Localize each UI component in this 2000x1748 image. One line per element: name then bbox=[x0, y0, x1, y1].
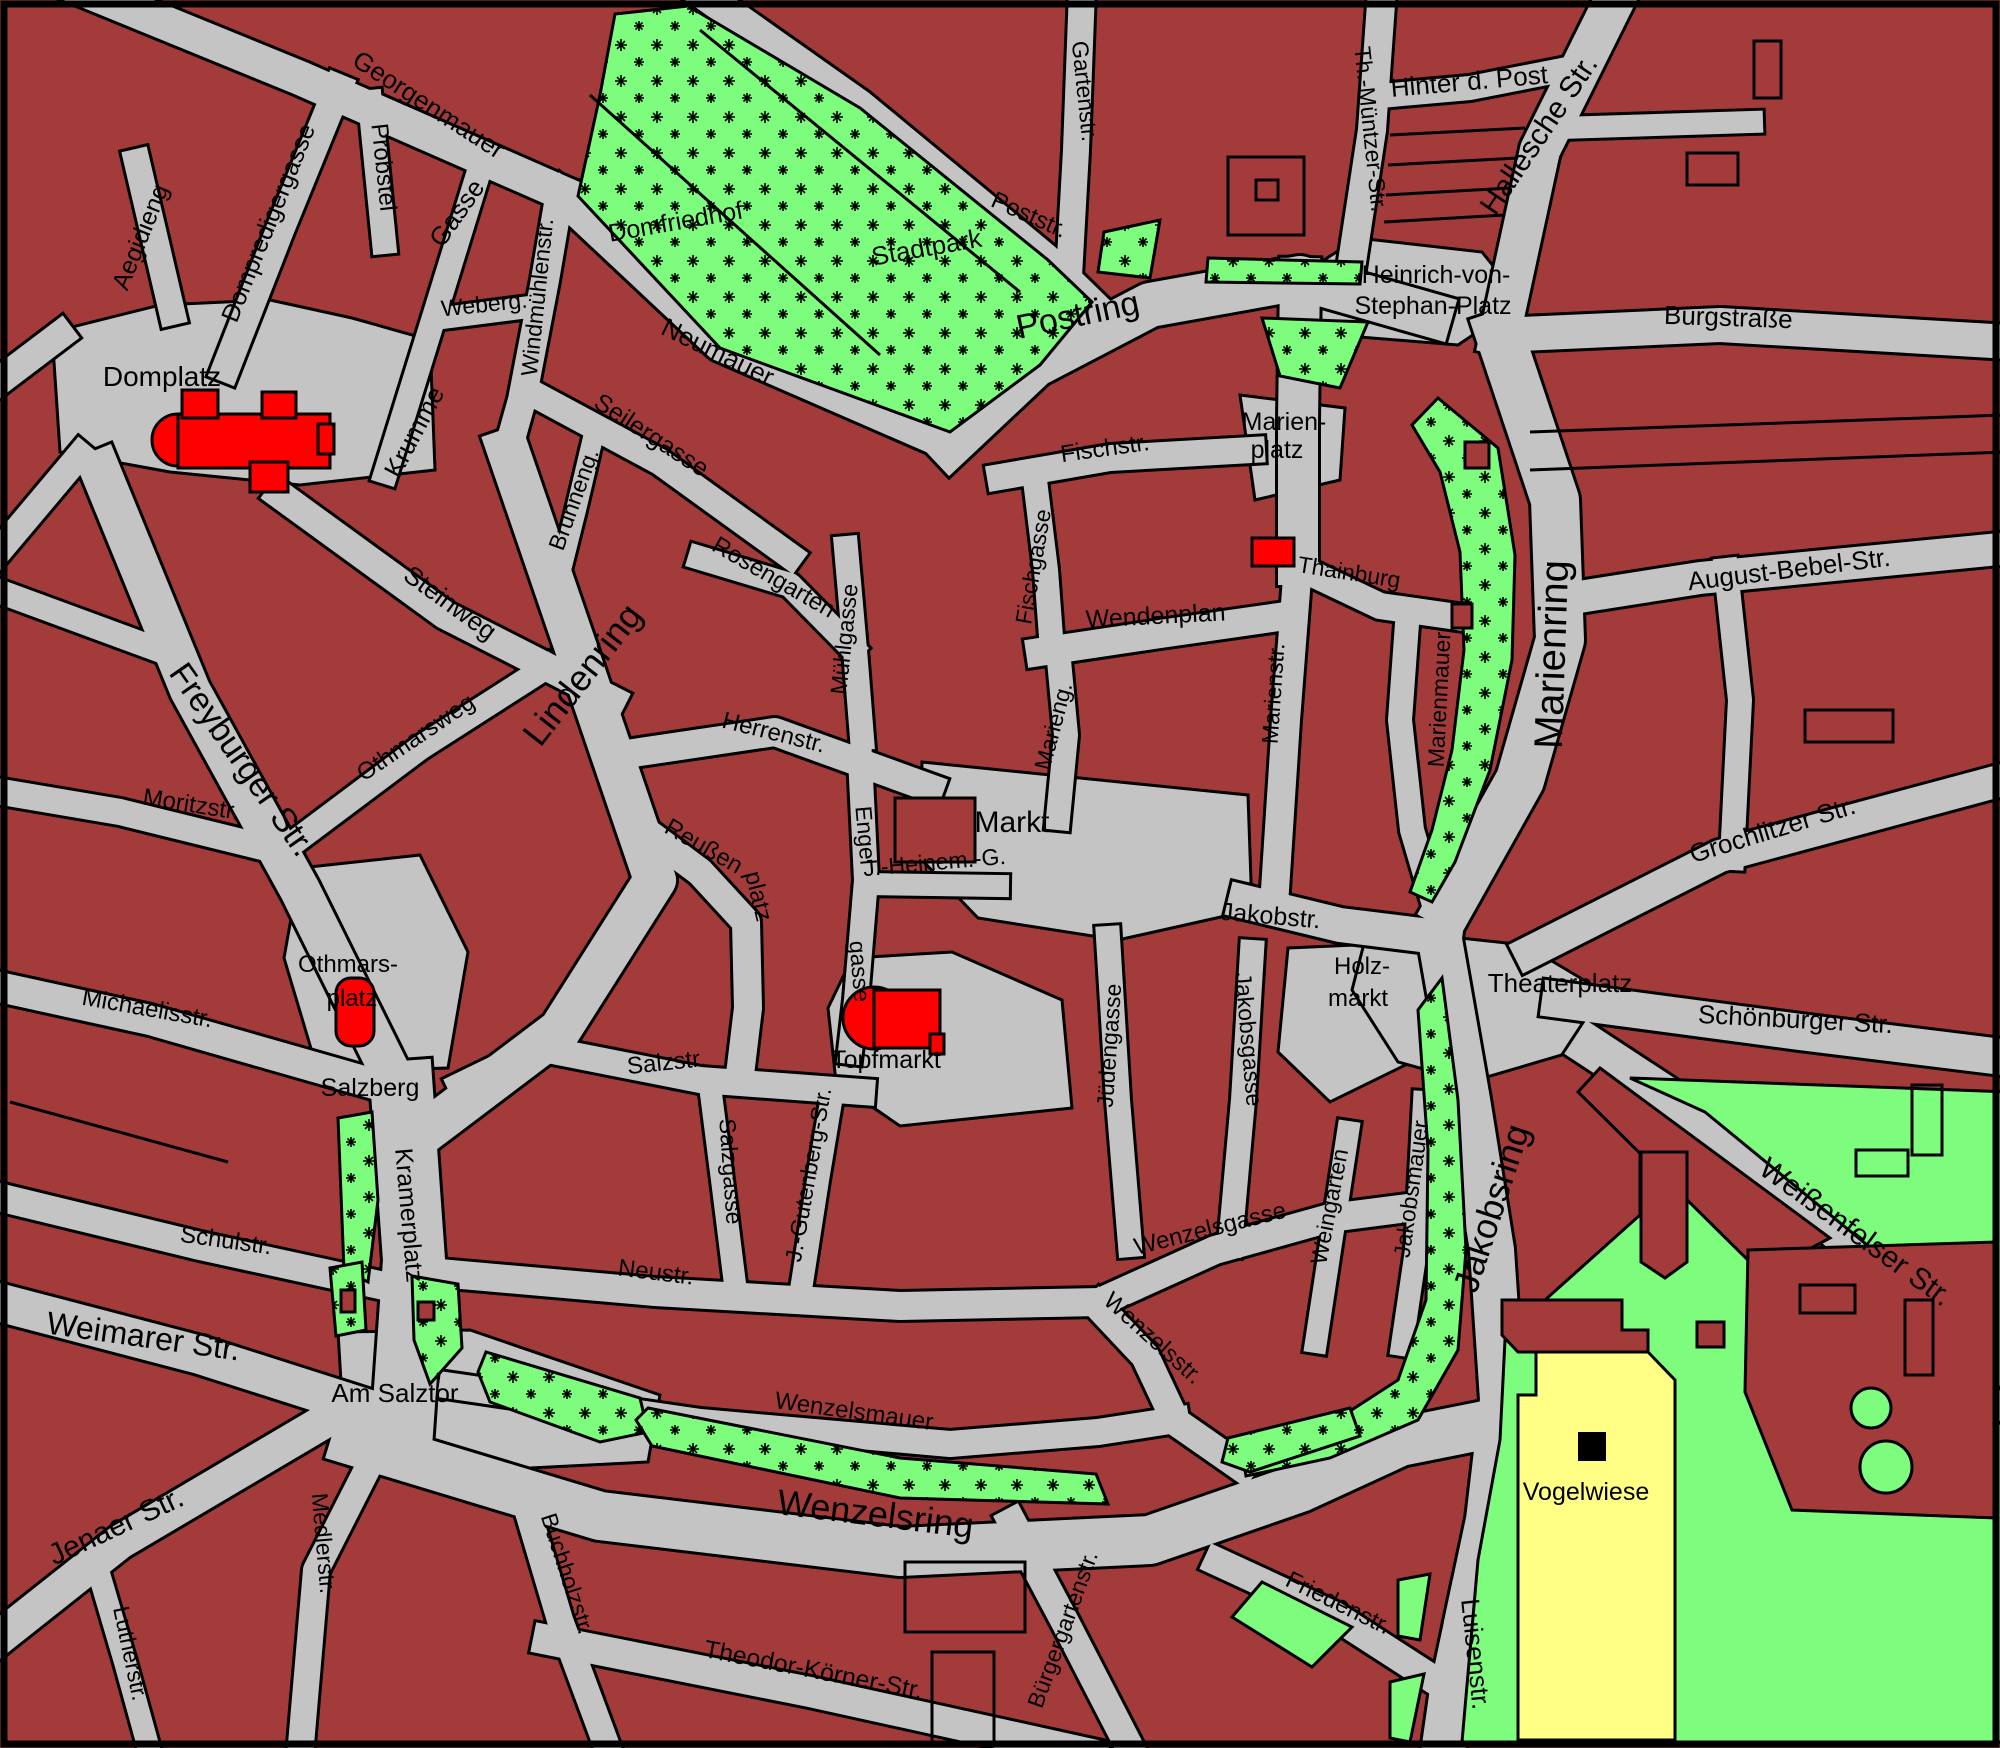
street-label-am-salztor-76: Am Salztor bbox=[331, 1378, 458, 1408]
dom-church-part-3 bbox=[262, 392, 296, 418]
street-label-theaterplatz-41: Theaterplatz bbox=[1488, 968, 1633, 998]
parking-lot-area bbox=[1518, 1352, 1675, 1740]
street-label-engel-54: Engel bbox=[850, 805, 881, 866]
city-map: P GeorgenmauerAegidiengDompredigergasseP… bbox=[0, 0, 2000, 1748]
street-segment-30 bbox=[866, 884, 998, 886]
block-over-green-5 bbox=[341, 1290, 355, 1312]
thainburg-building bbox=[1252, 538, 1294, 566]
street-segment-44 bbox=[1726, 570, 1740, 858]
dom-church-part-4 bbox=[318, 424, 334, 454]
street-label-gasse-55: gasse bbox=[844, 940, 875, 1003]
street-label-platz-32: platz bbox=[1251, 436, 1304, 464]
street-label-marien-31: Marien- bbox=[1242, 408, 1327, 436]
vogelwiese-parking-area: P bbox=[1518, 1352, 1675, 1740]
block-over-green-8 bbox=[1452, 604, 1472, 628]
street-label-holz-58: Holz- bbox=[1334, 953, 1390, 980]
dom-church-part-2 bbox=[182, 390, 218, 418]
street-label-stephan-platz-19: Stephan-Platz bbox=[1354, 292, 1511, 320]
tree-circle-1 bbox=[1860, 1441, 1912, 1493]
park-treed-2 bbox=[1206, 258, 1362, 284]
street-label-burgstra-e-20: Burgstraße bbox=[1664, 300, 1794, 334]
block-over-green-3 bbox=[1641, 1152, 1687, 1278]
street-label-domplatz-8: Domplatz bbox=[103, 361, 221, 392]
street-label-markt-59: markt bbox=[1328, 985, 1388, 1012]
block-over-green-4 bbox=[1697, 1322, 1724, 1347]
park-treed-6 bbox=[338, 1112, 378, 1282]
street-label-marienring-38: Marienring bbox=[1527, 559, 1578, 749]
street-label-topfmarkt-65: Topfmarkt bbox=[831, 1046, 941, 1074]
street-label-othmars-47: Othmars- bbox=[298, 951, 398, 978]
parking-icon-letter: P bbox=[1583, 1431, 1600, 1461]
block-over-green-6 bbox=[418, 1302, 434, 1320]
street-segment-71 bbox=[1560, 122, 1752, 128]
street-label-salzberg-49: Salzberg bbox=[321, 1074, 420, 1102]
street-label-platz-48: platz bbox=[327, 985, 378, 1012]
tree-circle-0 bbox=[1851, 1388, 1891, 1428]
dom-church-part-1 bbox=[178, 414, 330, 468]
map-canvas: P GeorgenmauerAegidiengDompredigergasseP… bbox=[0, 0, 2000, 1748]
street-label-vogelwiese-85: Vogelwiese bbox=[1523, 1478, 1649, 1506]
street-label-heinrich-von-18: Heinrich-von- bbox=[1362, 261, 1511, 289]
dom-church-part-5 bbox=[250, 462, 288, 492]
street-label-markt-52: Markt bbox=[975, 806, 1051, 839]
block-over-green-7 bbox=[1465, 442, 1489, 468]
